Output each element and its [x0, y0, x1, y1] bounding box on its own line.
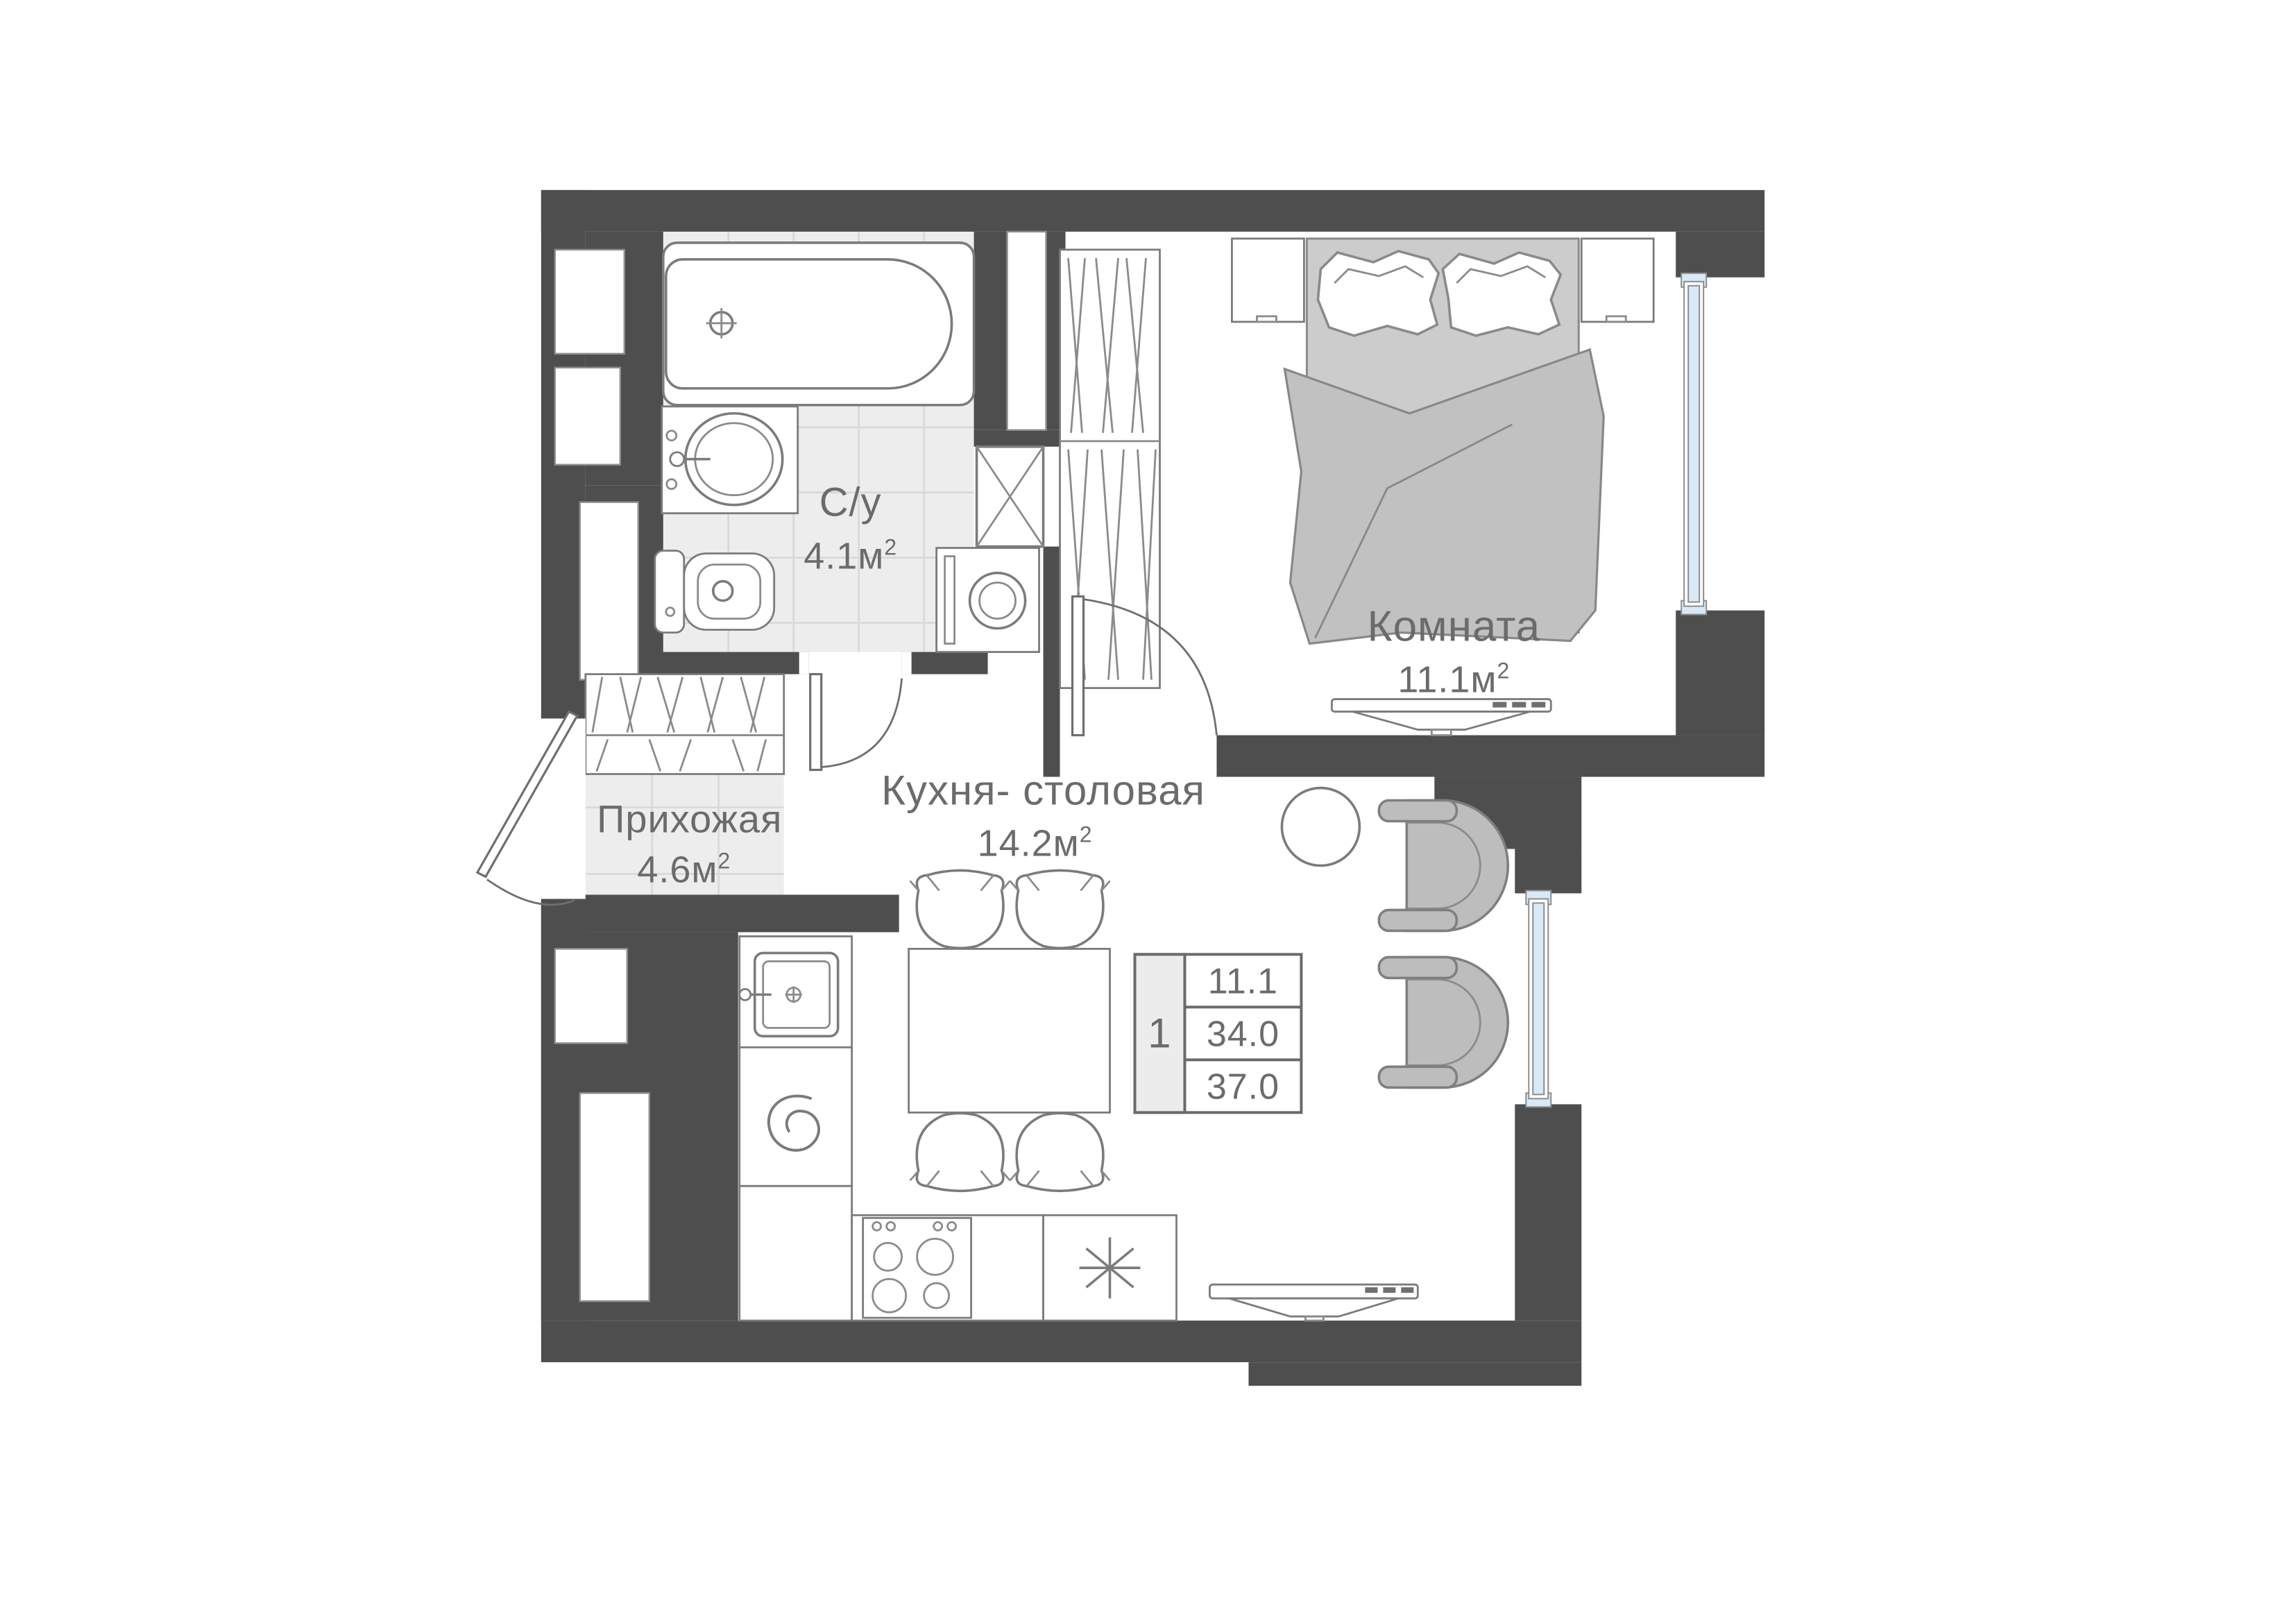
bedroom: Комната 11.1м2 [1060, 239, 1654, 736]
shaft-niche [580, 1093, 649, 1301]
info-table-area: 34.0 [1207, 1014, 1279, 1054]
door-leaf [1073, 597, 1084, 736]
door-jamb [902, 652, 912, 674]
wall-bottom-step [1248, 1362, 1581, 1386]
shaft-niche [555, 250, 624, 354]
wall-hallway-bottom [541, 894, 899, 932]
pillow [1318, 251, 1438, 336]
wall-duct-left [974, 232, 1007, 430]
kitchen-counter-column [740, 936, 852, 1320]
kitchen-counter-bottom [852, 1215, 1177, 1320]
info-table-living-area: 11.1 [1208, 961, 1278, 1001]
armchair [1379, 957, 1508, 1087]
kitchen-area: 14.2м2 [978, 822, 1093, 864]
hallway-area: 4.6м2 [637, 848, 731, 890]
stove [863, 1218, 971, 1318]
side-table [1282, 788, 1359, 866]
shaft-niche [555, 368, 620, 465]
hob-cabinet [740, 1047, 852, 1186]
living-tv [1209, 1284, 1418, 1320]
bedroom-window [1676, 273, 1764, 615]
hallway-label: Прихожая [597, 797, 782, 840]
entry-door-opening [541, 719, 586, 899]
armchair [1379, 801, 1508, 931]
window-glass [1688, 286, 1699, 602]
hallway-wardrobe [586, 674, 784, 774]
bedroom-tv [1332, 699, 1551, 736]
shaft-niche [555, 949, 627, 1043]
wall-top [541, 190, 1764, 232]
fridge [1044, 1215, 1177, 1320]
bathtub [663, 243, 974, 405]
wall-bedroom-right-upper [1676, 232, 1764, 278]
shaft-niche [580, 502, 638, 680]
double-bed [1284, 239, 1604, 644]
faucet-icon [740, 989, 751, 1000]
wall-bedroom-bottom [1216, 736, 1764, 777]
dining-table-set [909, 870, 1110, 1191]
duct-niche [1007, 232, 1046, 430]
bedroom-area: 11.1м2 [1397, 658, 1510, 701]
wall-bedroom-right-lower [1676, 611, 1764, 736]
info-table-rooms-count: 1 [1148, 1010, 1171, 1056]
toilet [655, 551, 774, 633]
bedroom-label: Комната [1367, 603, 1540, 651]
dining-chair [1010, 870, 1110, 948]
bathroom-sink [662, 407, 798, 513]
wall-bathroom-bottom-right [902, 652, 988, 674]
wall-bedroom-left [1044, 547, 1060, 777]
bathroom-door [799, 652, 912, 770]
bathroom-label: С/у [819, 481, 882, 525]
wall-bottom [541, 1320, 1581, 1362]
bathroom-area: 4.1м2 [803, 535, 897, 577]
dining-chair [1010, 1113, 1110, 1191]
dining-chair [910, 1113, 1010, 1191]
washing-machine [937, 548, 1039, 652]
kitchen-window [1515, 890, 1581, 1107]
pillow [1443, 253, 1561, 336]
floor-plan-page: С/у 4.1м2 Прихожая 4.6м2 [0, 0, 2296, 1623]
entry-door [477, 712, 586, 905]
wall-kitchen-right-lower [1515, 1104, 1581, 1320]
kitchen-label: Кухня- столовая [881, 767, 1205, 814]
counter-cabinet [740, 1186, 852, 1320]
floor-plan: С/у 4.1м2 Прихожая 4.6м2 [0, 0, 2296, 1623]
wall-kitchen-right-upper [1515, 849, 1581, 893]
nightstand [1581, 239, 1653, 322]
info-table: 1 11.1 34.0 37.0 [1135, 954, 1302, 1112]
wall-duct-sill [974, 430, 1066, 447]
info-table-total-area: 37.0 [1207, 1067, 1279, 1107]
dining-chair [910, 870, 1010, 948]
door-jamb [799, 652, 809, 674]
door-swing-arc [822, 679, 902, 767]
window-glass [1533, 903, 1544, 1094]
dining-table [909, 949, 1110, 1112]
kitchen-living: Кухня- столовая 14.2м2 [740, 767, 1508, 1321]
door-leaf [810, 674, 822, 770]
faucet-icon [670, 452, 684, 466]
nightstand [1232, 239, 1304, 322]
vent-shaft [977, 447, 1044, 547]
